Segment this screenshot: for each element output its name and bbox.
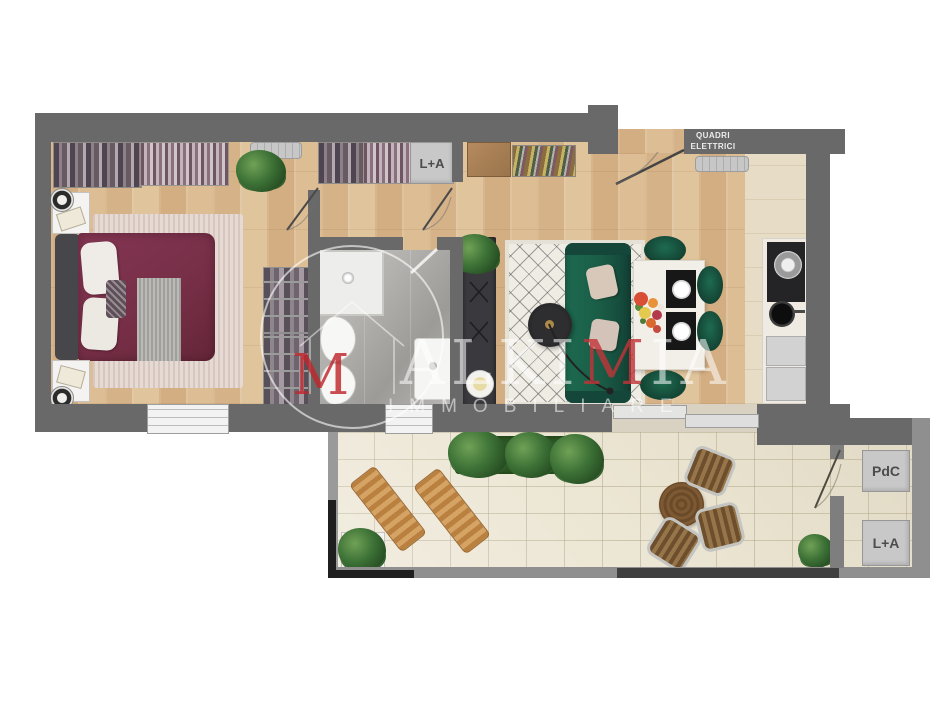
wall-bottom-c <box>431 404 612 432</box>
shelf-unit-upper <box>263 267 310 333</box>
sofa-armrest <box>565 243 631 255</box>
dining-chair <box>640 370 686 400</box>
terrace-wall-right <box>912 418 930 578</box>
planter-foliage <box>448 430 508 478</box>
wardrobe-rail <box>140 142 229 186</box>
cooktop-pan <box>774 251 802 279</box>
electrical-panel-line1: QUADRI <box>678 131 748 142</box>
heat-pump-unit: PdC <box>862 450 910 492</box>
electrical-panel-label: QUADRI ELETTRICI <box>678 131 748 153</box>
sliding-door-panel <box>613 405 687 419</box>
wall-right <box>806 129 830 406</box>
heat-pump-label: PdC <box>872 463 900 479</box>
sink-faucet <box>793 310 805 313</box>
wall-bottom-b <box>227 404 385 432</box>
terrace-laundry-unit: L+A <box>862 520 910 566</box>
corner-planter-foliage <box>338 528 386 572</box>
wardrobe-open <box>53 142 142 188</box>
terrace-railing <box>328 570 414 578</box>
entry-radiator <box>695 156 749 172</box>
candle <box>466 370 494 398</box>
electrical-panel-line2: ELETTRICI <box>678 142 748 153</box>
terrace-edge-dark <box>617 568 839 578</box>
terrace-laundry-label: L+A <box>873 535 900 551</box>
console-sideboard <box>467 142 511 177</box>
bedroom-window <box>147 404 229 434</box>
terrace-partition <box>830 496 844 568</box>
table-lamp-top <box>50 188 74 212</box>
dinner-plate <box>672 322 691 341</box>
terrace-partition-post <box>830 445 844 459</box>
shower-head <box>342 272 354 284</box>
floorplan-rendering: L+A PdC <box>0 0 940 720</box>
laundry-closet-label: L+A <box>420 156 445 171</box>
terrace-railing <box>328 500 336 578</box>
wall-bedroom-separator <box>308 190 320 405</box>
flower-centerpiece <box>634 292 648 306</box>
bedroom-plant <box>236 150 286 192</box>
washbasin-drain <box>429 362 437 370</box>
entry-floor-patch <box>618 129 684 154</box>
wall-left <box>35 113 51 432</box>
kitchen-cabinet <box>766 336 806 366</box>
wall-bottom-a <box>35 404 147 432</box>
wall-hall-stub <box>452 142 463 182</box>
dining-chair <box>697 266 723 304</box>
shelf-unit-lower <box>263 333 310 405</box>
dinner-plate <box>672 280 691 299</box>
bathroom-window <box>385 404 433 434</box>
dining-chair <box>697 311 723 351</box>
wall-step <box>588 105 618 154</box>
bed-accent-pillow <box>106 280 126 318</box>
bed-throw-blanket <box>137 278 181 361</box>
sofa-pillow <box>588 318 620 352</box>
bookshelf <box>512 145 576 177</box>
hall-wardrobe-2 <box>363 142 412 184</box>
wall-bath-right <box>450 237 463 404</box>
wall-bottom-d <box>757 404 850 445</box>
wall-bath-top-a <box>308 237 403 250</box>
sofa-armrest <box>565 391 631 403</box>
sliding-door-panel <box>685 414 759 428</box>
planter-foliage <box>550 434 604 484</box>
laundry-closet: L+A <box>410 142 454 184</box>
kitchen-cabinet <box>766 367 806 401</box>
terrace-plant <box>798 534 834 568</box>
kitchen-sink <box>769 301 795 327</box>
floor-lamp-bulb <box>545 320 554 329</box>
wall-top-left <box>35 113 602 142</box>
hall-wardrobe-1 <box>318 142 365 184</box>
